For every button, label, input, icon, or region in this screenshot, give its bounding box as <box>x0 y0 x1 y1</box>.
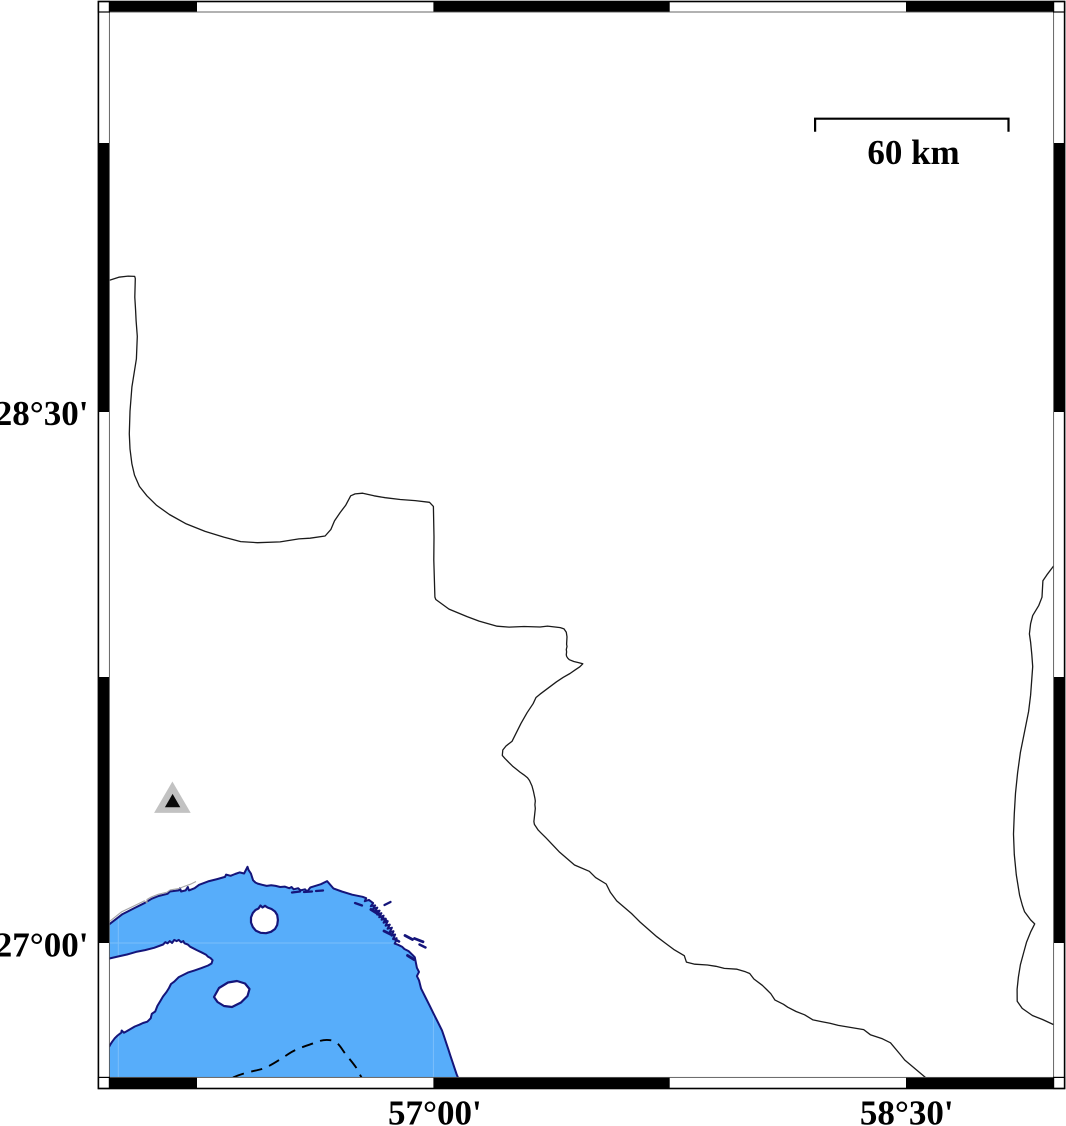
svg-text:58°30': 58°30' <box>860 1094 954 1126</box>
svg-text:28°30': 28°30' <box>0 394 89 433</box>
svg-text:57°00': 57°00' <box>388 1094 482 1126</box>
svg-text:27°00': 27°00' <box>0 926 89 965</box>
svg-text:60 km: 60 km <box>867 133 959 172</box>
